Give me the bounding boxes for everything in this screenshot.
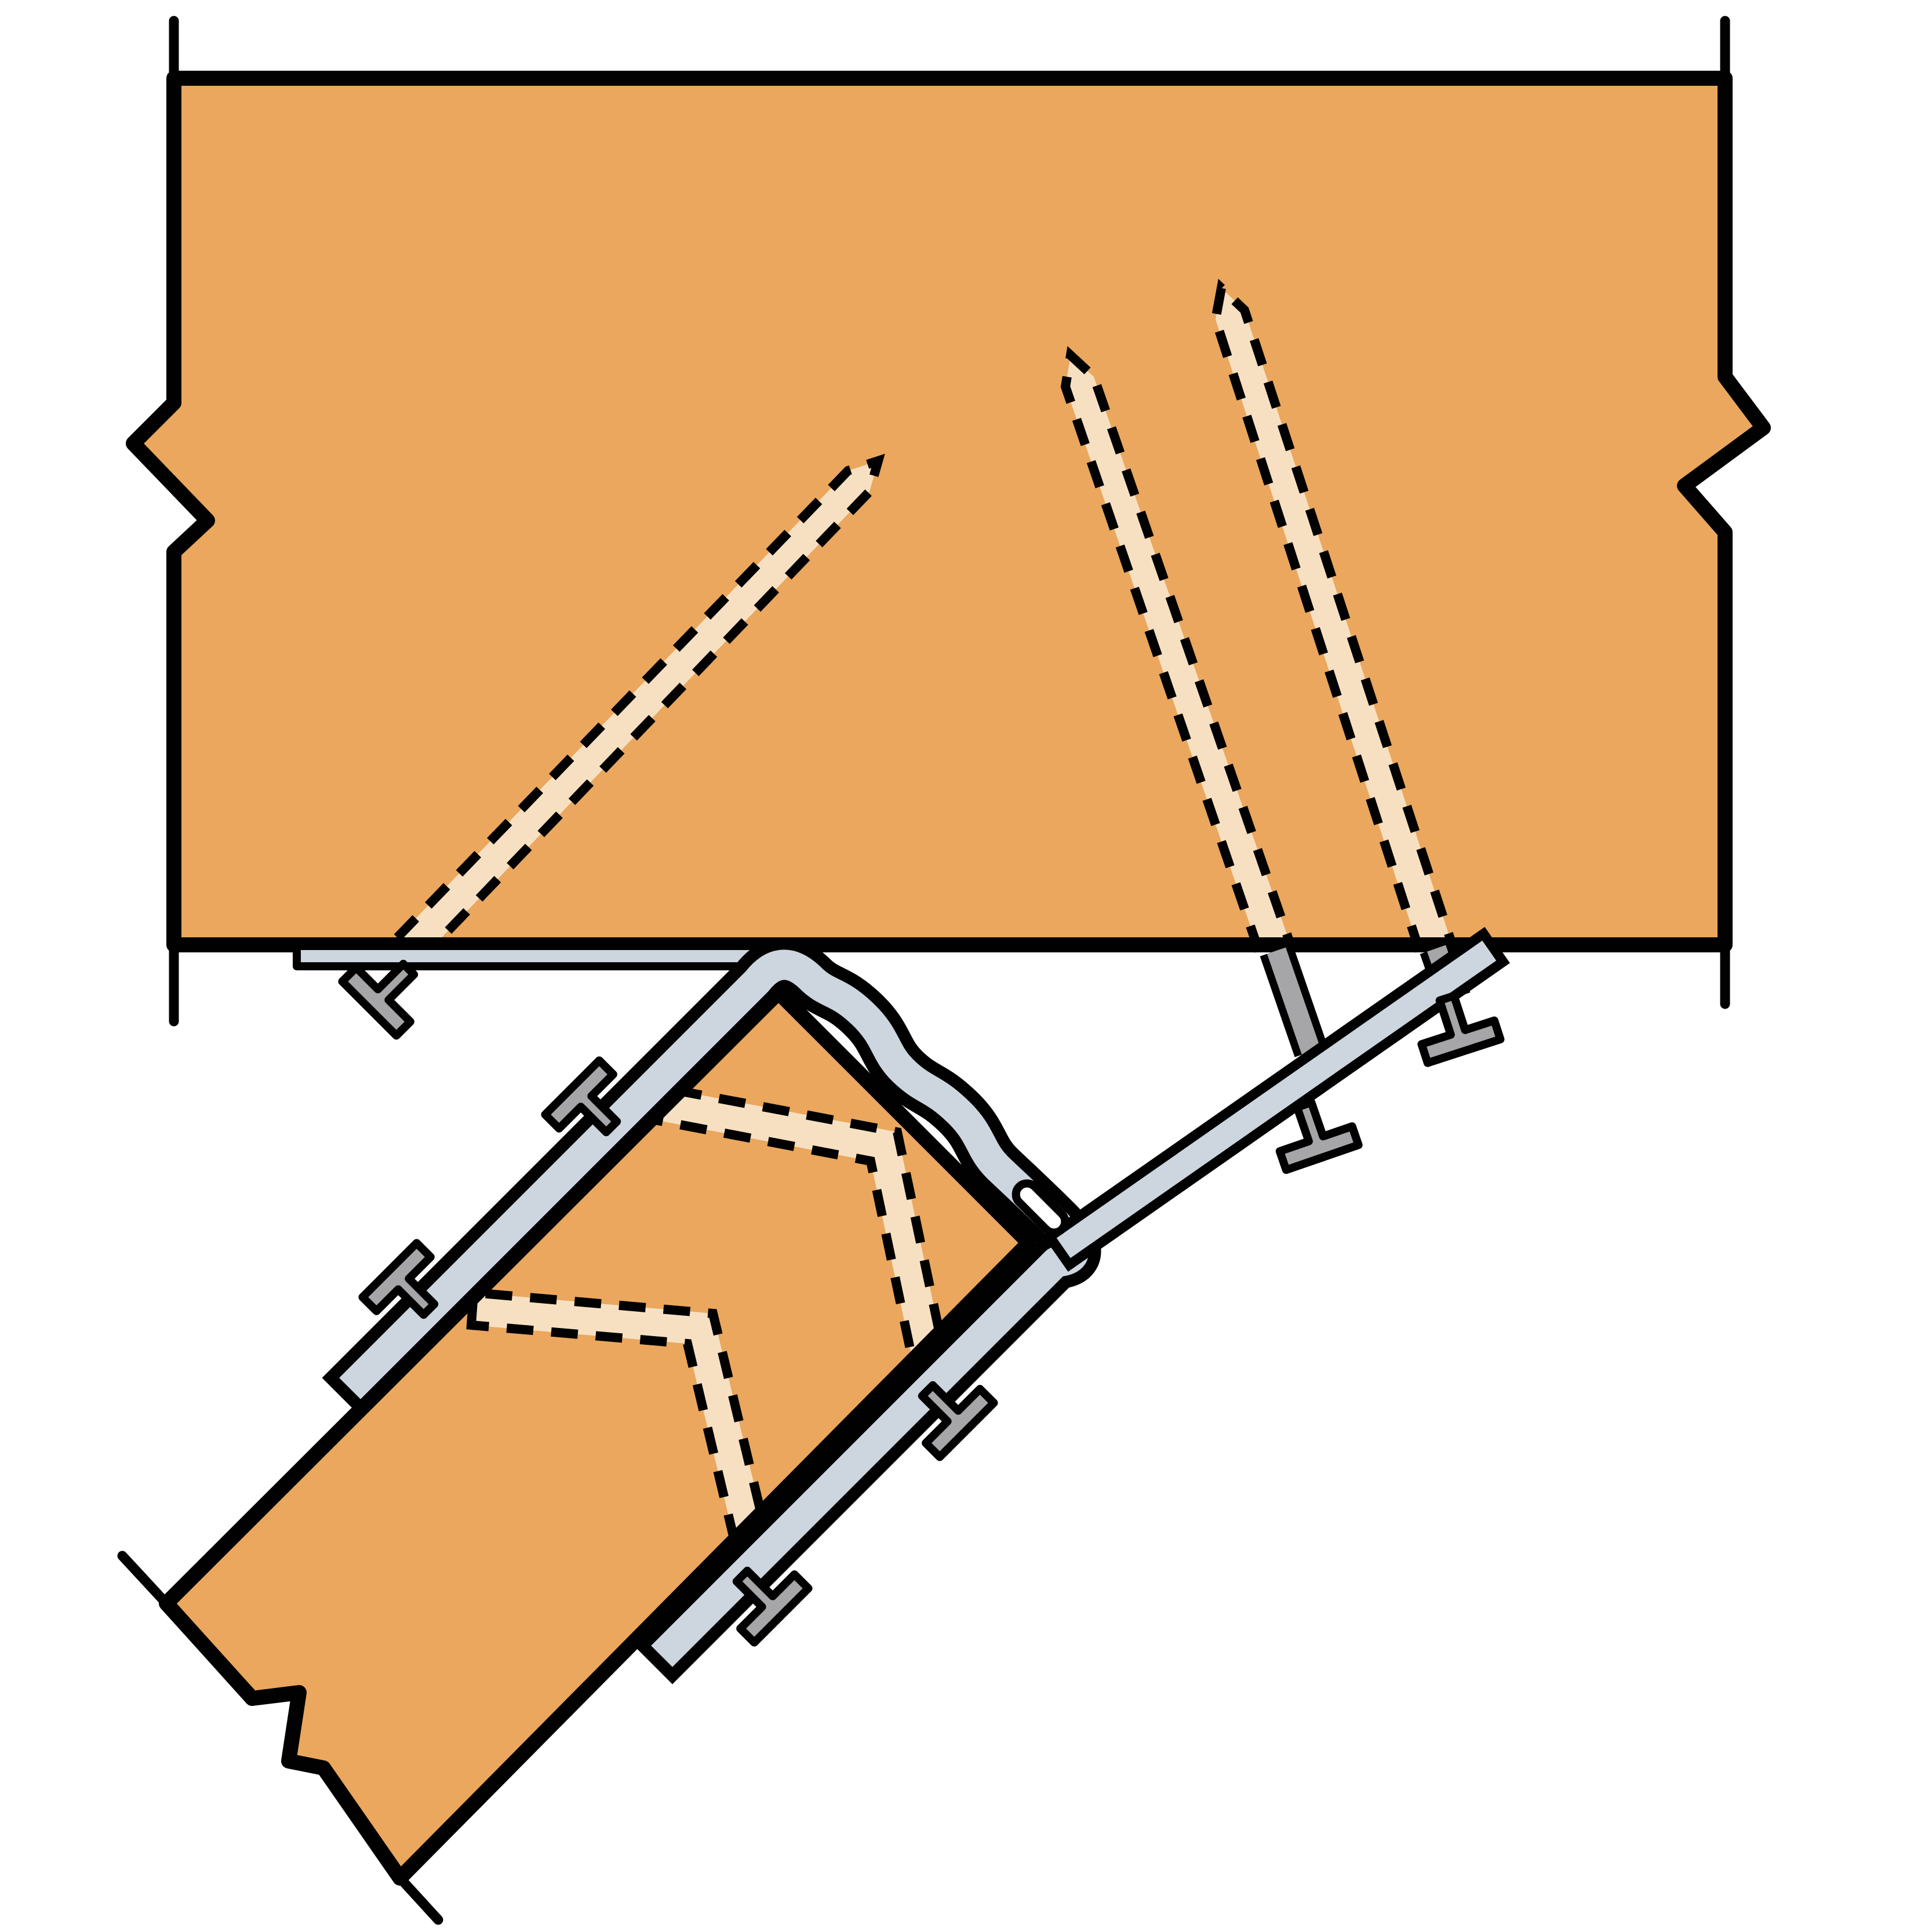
header-wood-fill [133,78,1763,945]
joist-cut-extension-bottom [401,1879,438,1920]
diagram-canvas: Sloped joist hanger installation detail [0,0,1932,1932]
joist-cut-extension-top [122,1556,165,1602]
hanger-header-flange [297,946,763,966]
header-beam [133,21,1763,1021]
joist-hanger-diagram: Sloped joist hanger installation detail [0,0,1932,1932]
